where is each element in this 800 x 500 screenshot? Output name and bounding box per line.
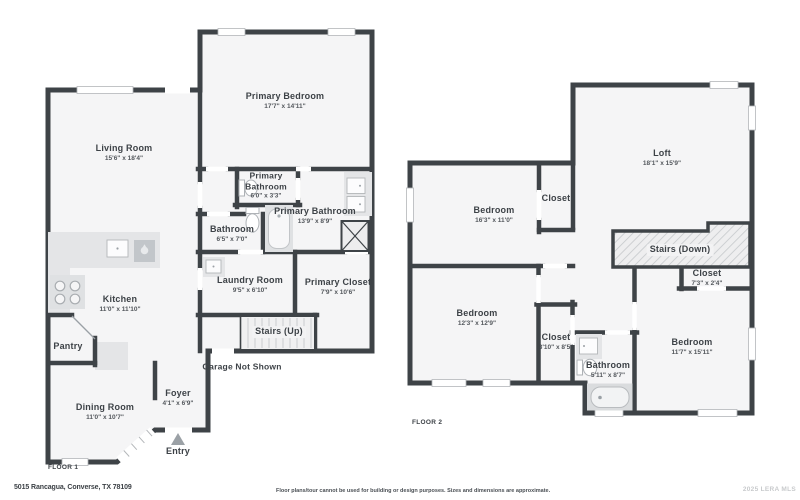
- room-dims: 3'10" x 8'5": [539, 344, 574, 352]
- room-dims: 18'1" x 15'9": [643, 160, 681, 168]
- room-dims: 7'9" x 10'6": [305, 289, 371, 297]
- room-name: Primary: [245, 171, 287, 182]
- room-label-bedroom-1: Bedroom 16'3" x 11'0": [474, 205, 515, 225]
- room-name: Foyer: [163, 388, 194, 400]
- room-name: Bathroom: [586, 360, 630, 372]
- mls-watermark: 2025 LERA MLS: [743, 486, 796, 493]
- room-name: Bedroom: [474, 205, 515, 217]
- room-label-loft: Loft 18'1" x 15'9": [643, 148, 681, 168]
- kitchen-stove-icon: [50, 275, 85, 309]
- room-dims: 6'5" x 7'0": [210, 236, 254, 244]
- room-name: Bathroom: [210, 224, 254, 236]
- room-name: Primary Bathroom: [274, 206, 356, 218]
- room-name: Bedroom: [671, 337, 712, 349]
- disclaimer-text: Floor plans/tour cannot be used for buil…: [276, 488, 550, 494]
- room-dims: 13'9" x 8'9": [274, 218, 356, 226]
- room-label-laundry-room: Laundry Room 9'5" x 6'10": [217, 275, 283, 295]
- laundry-sink-icon: [206, 260, 221, 273]
- room-dims: 12'3" x 12'9": [457, 320, 498, 328]
- room-label-foyer: Foyer 4'1" x 6'9": [163, 388, 194, 408]
- room-dims: 11'0" x 10'7": [76, 414, 134, 422]
- room-label-bathroom: Bathroom 6'5" x 7'0": [210, 224, 254, 244]
- bathroom2-bathtub-icon: [587, 384, 633, 411]
- room-name: Dining Room: [76, 402, 134, 414]
- room-label-bedroom-2: Bedroom 12'3" x 12'9": [457, 308, 498, 328]
- room-dims: 4'1" x 6'9": [163, 400, 194, 408]
- room-name: Bedroom: [457, 308, 498, 320]
- room-dims: 16'3" x 11'0": [474, 217, 515, 225]
- room-label-closet-2: Closet 7'3" x 2'4": [692, 268, 723, 288]
- bathroom2-vanity-icon: [576, 334, 602, 359]
- room-name: Laundry Room: [217, 275, 283, 287]
- floorplan-canvas: Living Room 15'6" x 18'4" Primary Bedroo…: [0, 0, 800, 500]
- room-dims: 11'0" x 11'10": [99, 306, 140, 314]
- room-dims: 11'7" x 15'11": [671, 349, 712, 357]
- room-name: Closet: [692, 268, 723, 280]
- room-dims: 9'5" x 6'10": [217, 287, 283, 295]
- room-dims: 6'0" x 3'3": [245, 193, 287, 201]
- room-name: Stairs (Down): [650, 244, 711, 256]
- room-name: Entry: [166, 446, 190, 458]
- room-dims: 17'7" x 14'11": [246, 103, 325, 111]
- floor1-tag: FLOOR 1: [48, 464, 78, 471]
- room-dims: 7'3" x 2'4": [692, 280, 723, 288]
- room-label-bedroom-3: Bedroom 11'7" x 15'11": [671, 337, 712, 357]
- room-name: Stairs (Up): [255, 326, 303, 338]
- room-name: Primary Closet: [305, 277, 371, 289]
- room-label-dining-room: Dining Room 11'0" x 10'7": [76, 402, 134, 422]
- room-label-bathroom-2: Bathroom 5'11" x 8'7": [586, 360, 630, 380]
- room-label-primary-closet: Primary Closet 7'9" x 10'6": [305, 277, 371, 297]
- room-label-closet-1: Closet: [542, 193, 571, 205]
- room-label-primary-bathroom: Primary Bathroom 13'9" x 8'9": [274, 206, 356, 226]
- kitchen-appliance-icon: [134, 240, 155, 262]
- room-dims: 15'6" x 18'4": [96, 155, 153, 163]
- room-name: Primary Bedroom: [246, 91, 325, 103]
- room-name: Closet: [539, 332, 574, 344]
- room-name: Living Room: [96, 143, 153, 155]
- room-name: Pantry: [53, 341, 82, 353]
- room-name: Closet: [542, 193, 571, 205]
- label-garage-not-shown: Garage Not Shown: [202, 361, 281, 372]
- room-name: Kitchen: [99, 294, 140, 306]
- label-entry: Entry: [166, 446, 190, 458]
- room-label-primary-bathroom-wc: Primary Bathroom 6'0" x 3'3": [245, 171, 287, 202]
- room-label-primary-bedroom: Primary Bedroom 17'7" x 14'11": [246, 91, 325, 111]
- room-label-closet-3: Closet 3'10" x 8'5": [539, 332, 574, 352]
- room-name: Loft: [643, 148, 681, 160]
- floor2-tag: FLOOR 2: [412, 419, 442, 426]
- room-name: Bathroom: [245, 182, 287, 193]
- room-dims: 5'11" x 8'7": [586, 372, 630, 380]
- room-name: Garage Not Shown: [202, 361, 281, 372]
- property-address: 5015 Rancagua, Converse, TX 78109: [14, 484, 132, 491]
- room-label-kitchen: Kitchen 11'0" x 11'10": [99, 294, 140, 314]
- room-label-stairs-up: Stairs (Up): [252, 326, 306, 338]
- room-label-pantry: Pantry: [53, 341, 82, 353]
- kitchen-sink-icon: [107, 240, 128, 257]
- room-label-living-room: Living Room 15'6" x 18'4": [96, 143, 153, 163]
- entry-arrow-icon: [171, 433, 185, 445]
- room-label-stairs-down: Stairs (Down): [647, 244, 714, 256]
